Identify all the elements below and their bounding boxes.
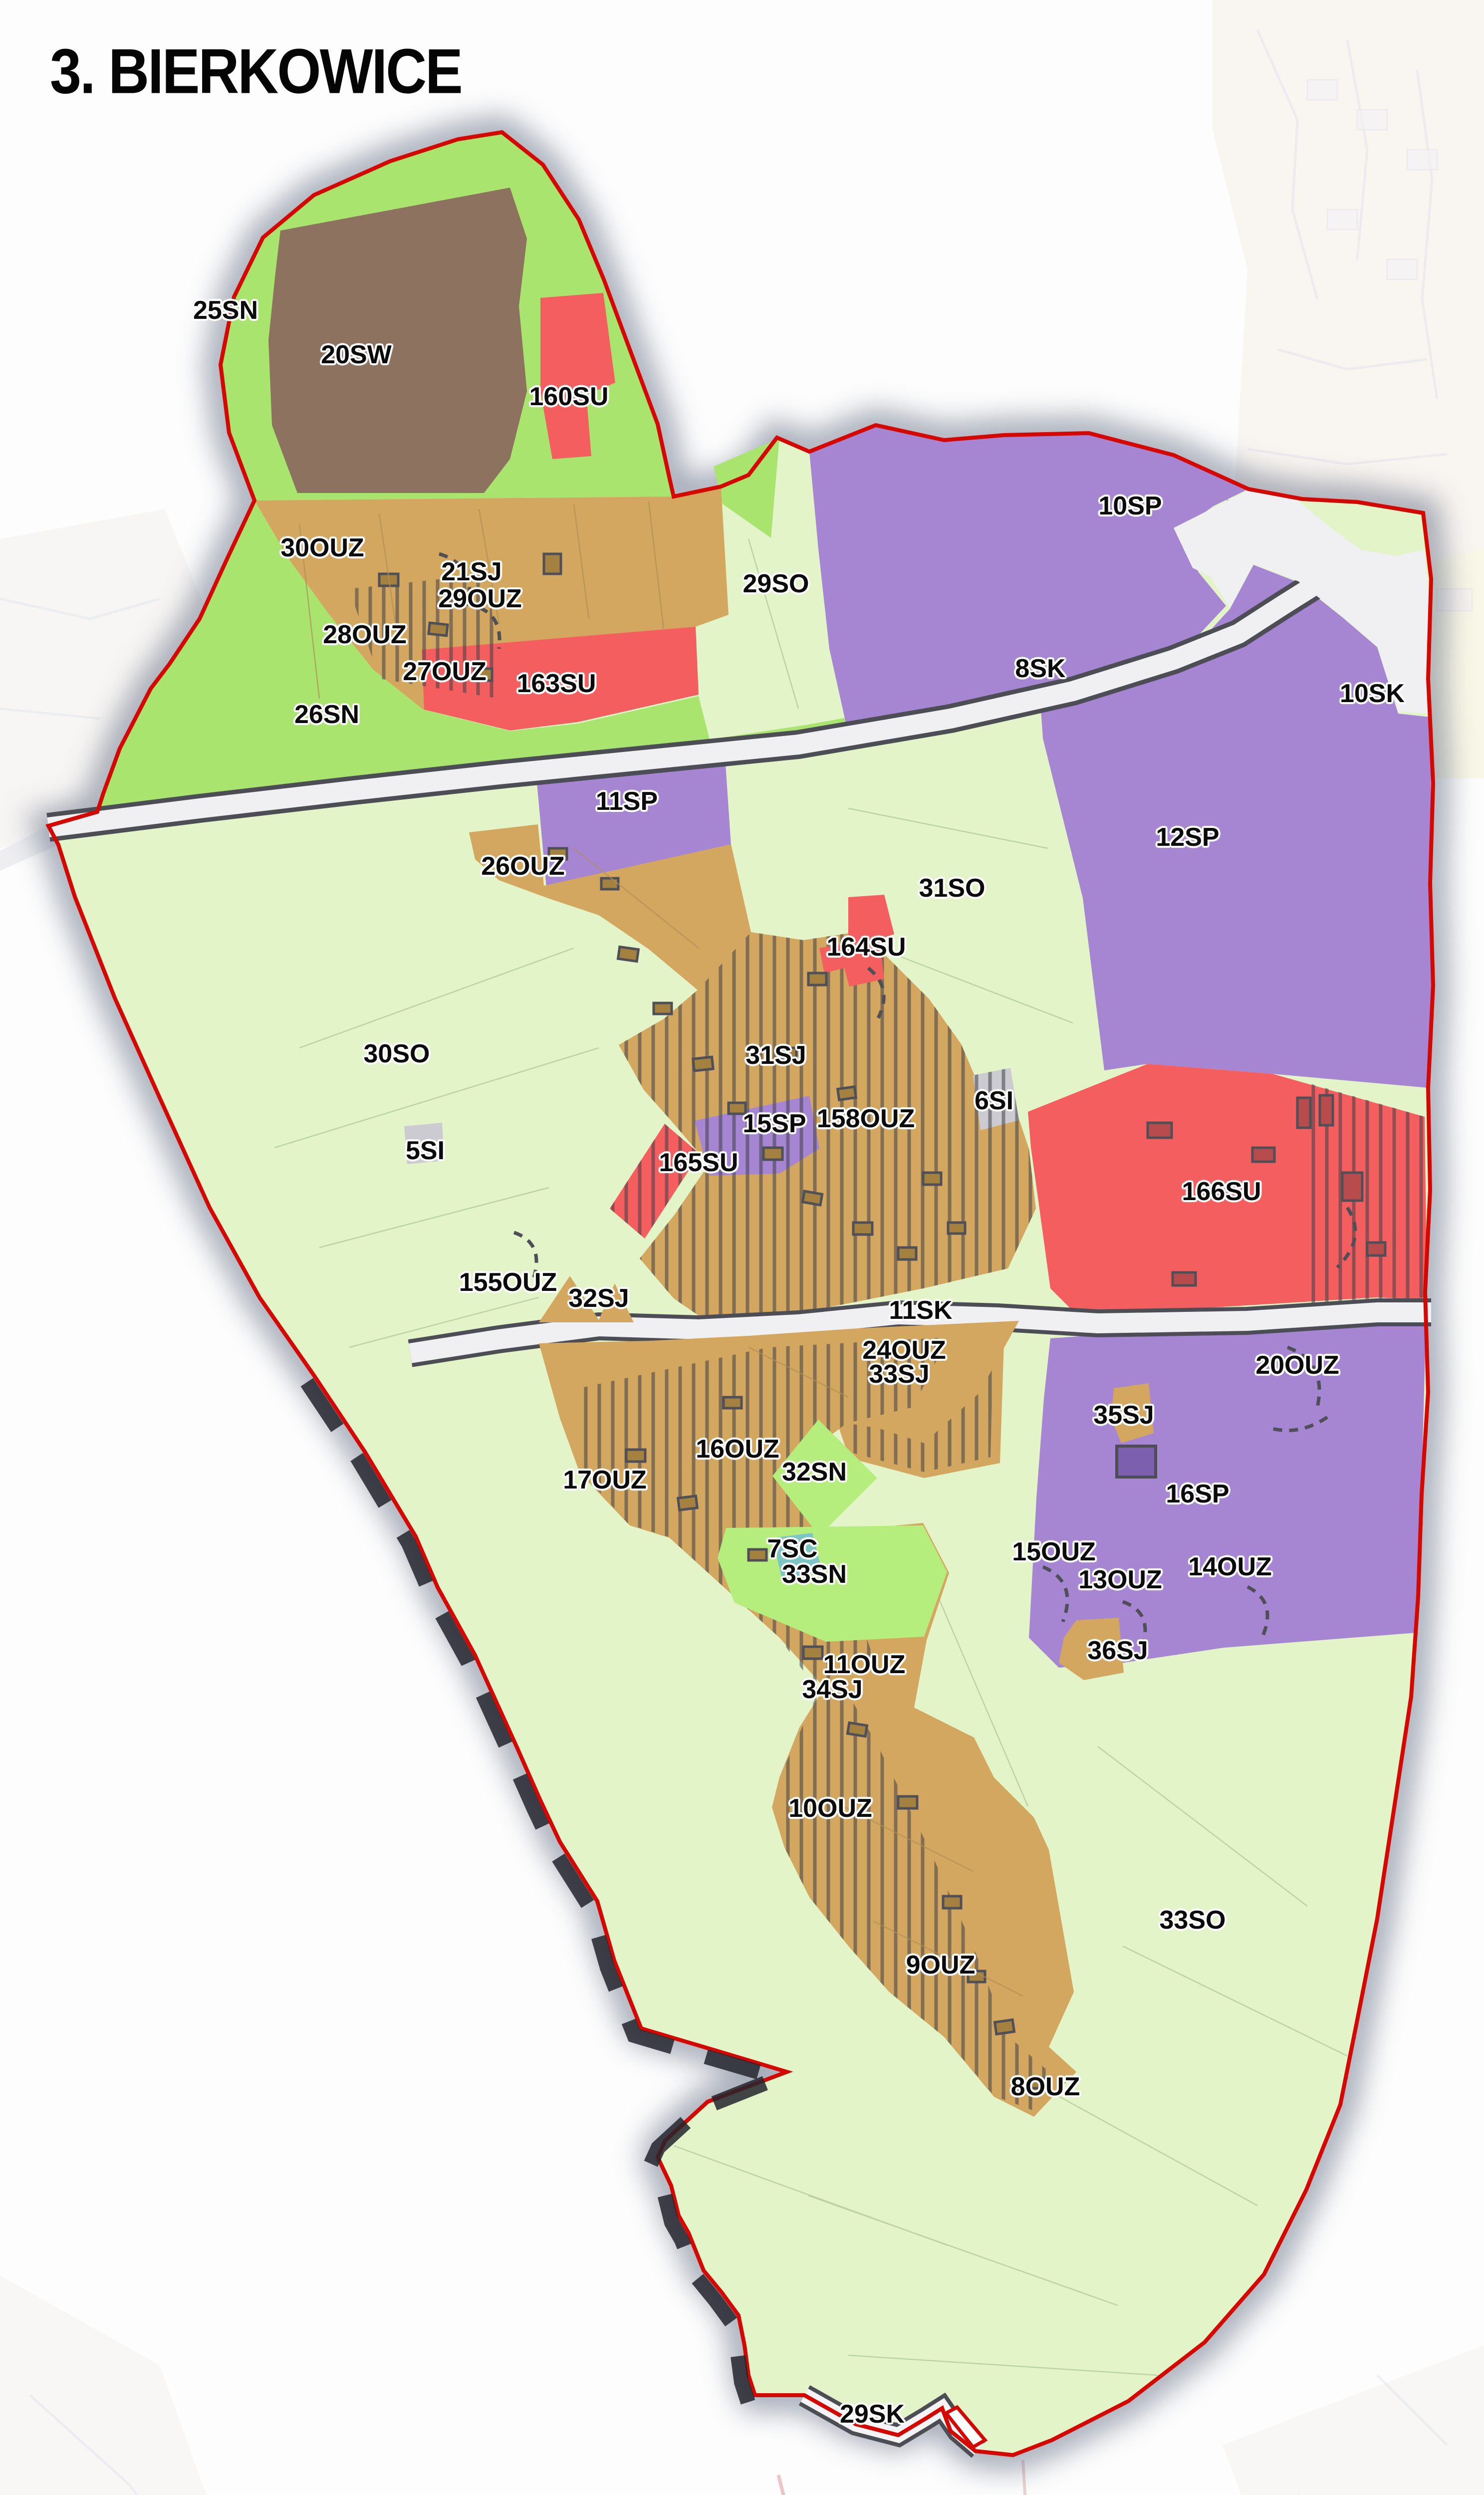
zone-label-165SU: 165SU xyxy=(659,1148,739,1178)
zone-label-21SJ: 21SJ xyxy=(441,557,501,587)
zone-label-5SI: 5SI xyxy=(406,1136,445,1166)
zone-label-27OUZ: 27OUZ xyxy=(403,657,487,687)
zone-label-29SO: 29SO xyxy=(743,569,809,599)
page-title: 3. BIERKOWICE xyxy=(50,35,462,108)
zone-label-34SJ: 34SJ xyxy=(802,1675,862,1705)
zone-label-10SP: 10SP xyxy=(1098,491,1162,521)
zone-label-30SO: 30SO xyxy=(364,1039,430,1069)
zone-label-32SN: 32SN xyxy=(782,1457,847,1487)
zone-label-11SK: 11SK xyxy=(889,1295,952,1325)
zone-label-28OUZ: 28OUZ xyxy=(323,620,407,650)
zone-label-32SJ: 32SJ xyxy=(568,1283,629,1313)
zone-label-33SO: 33SO xyxy=(1160,1905,1226,1935)
zone-label-25SN: 25SN xyxy=(193,295,258,325)
zone-label-36SJ: 36SJ xyxy=(1087,1636,1148,1666)
zone-label-15SP: 15SP xyxy=(742,1109,806,1139)
zone-label-30OUZ: 30OUZ xyxy=(280,533,364,563)
zone-label-158OUZ: 158OUZ xyxy=(817,1104,915,1134)
zone-label-29OUZ: 29OUZ xyxy=(438,584,522,614)
zone-label-9OUZ: 9OUZ xyxy=(906,1950,976,1980)
zone-label-33SN: 33SN xyxy=(782,1559,847,1589)
zone-label-17OUZ: 17OUZ xyxy=(563,1465,647,1495)
zone-label-31SO: 31SO xyxy=(919,873,986,903)
map-canvas: 3. BIERKOWICE 25SN20SW160SU30OUZ21SJ29OU… xyxy=(0,0,1484,2495)
zone-label-20SW: 20SW xyxy=(321,340,392,370)
zone-label-10OUZ: 10OUZ xyxy=(788,1793,872,1823)
zone-label-166SU: 166SU xyxy=(1182,1177,1261,1207)
zone-label-6SI: 6SI xyxy=(975,1086,1013,1116)
zone-label-164SU: 164SU xyxy=(827,932,906,962)
zone-label-11SP: 11SP xyxy=(596,786,658,816)
zone-label-155OUZ: 155OUZ xyxy=(459,1267,557,1297)
zone-35SJ-facility xyxy=(1117,1446,1156,1477)
zone-label-8SK: 8SK xyxy=(1015,654,1065,684)
zone-20SW-shape xyxy=(268,188,527,493)
zone-label-13OUZ: 13OUZ xyxy=(1078,1565,1162,1595)
zone-label-160SU: 160SU xyxy=(529,382,609,412)
map-svg xyxy=(0,0,1484,2495)
zone-label-26SN: 26SN xyxy=(294,700,359,730)
zone-label-33SJ: 33SJ xyxy=(869,1359,929,1389)
zone-label-12SP: 12SP xyxy=(1156,822,1219,852)
zone-label-29SK: 29SK xyxy=(840,2399,905,2429)
zone-label-8OUZ: 8OUZ xyxy=(1011,2072,1080,2102)
zone-label-15OUZ: 15OUZ xyxy=(1012,1537,1096,1567)
zone-label-35SJ: 35SJ xyxy=(1093,1400,1154,1430)
zone-label-14OUZ: 14OUZ xyxy=(1188,1552,1272,1582)
zone-label-10SK: 10SK xyxy=(1340,679,1405,709)
zone-label-16OUZ: 16OUZ xyxy=(696,1434,779,1464)
zone-label-20OUZ: 20OUZ xyxy=(1255,1350,1339,1380)
zone-label-16SP: 16SP xyxy=(1166,1479,1229,1509)
zone-label-26OUZ: 26OUZ xyxy=(481,851,565,881)
zone-label-163SU: 163SU xyxy=(517,669,596,699)
zone-label-31SJ: 31SJ xyxy=(745,1040,806,1070)
